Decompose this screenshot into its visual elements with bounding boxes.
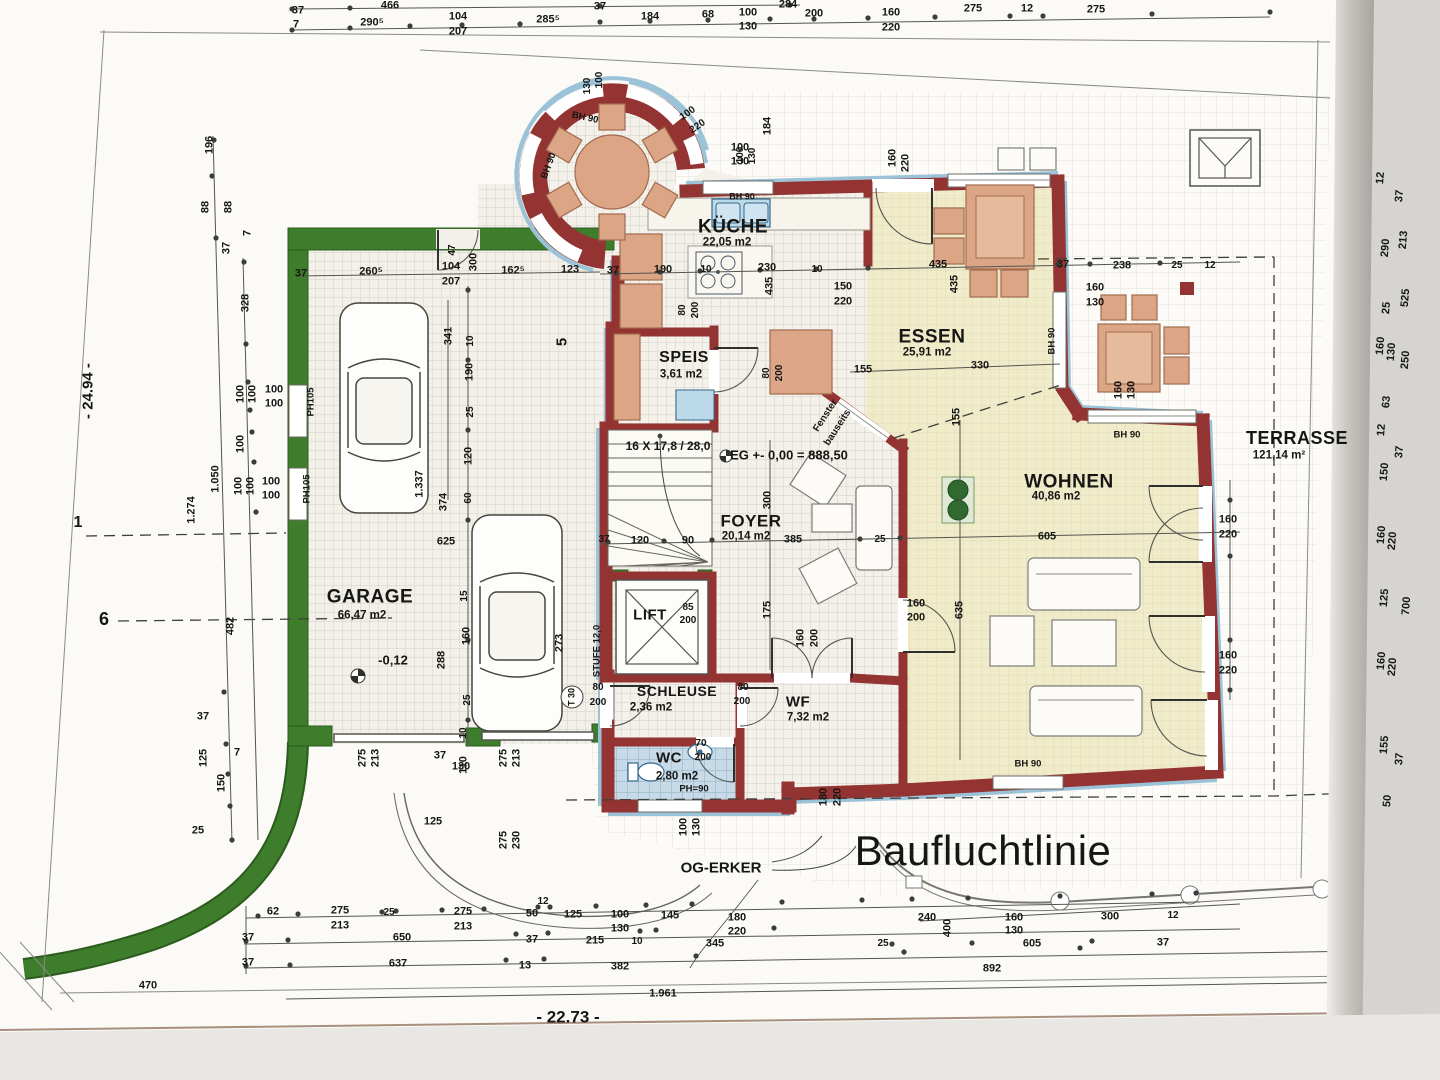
dim-label: 200 bbox=[590, 698, 607, 708]
dim-label: 10 bbox=[700, 265, 711, 275]
dim-label: 184 bbox=[641, 12, 659, 23]
dim-label: 37 bbox=[594, 2, 606, 13]
dim-label: 150 bbox=[217, 774, 228, 792]
dim-label: 275 bbox=[964, 4, 982, 15]
dim-label: 330 bbox=[971, 361, 989, 372]
dim-label: 150 bbox=[834, 282, 852, 293]
room-area: 66,47 m2 bbox=[338, 610, 387, 622]
annotation: 16 X 17,8 / 28,0 bbox=[626, 440, 711, 452]
dim-label: 200 bbox=[805, 9, 823, 20]
room-label: WF bbox=[786, 695, 810, 710]
dim-label: 145 bbox=[661, 911, 679, 922]
dim-label: 525 bbox=[1400, 288, 1413, 307]
room-area: 3,61 m2 bbox=[660, 369, 702, 381]
dim-label: 435 bbox=[765, 277, 776, 295]
dim-label: 650 bbox=[393, 933, 411, 944]
room-area: 20,14 m2 bbox=[722, 531, 771, 543]
dim-label: PH=90 bbox=[679, 784, 708, 794]
dim-label: 12 bbox=[537, 897, 548, 907]
annotation: Baufluchtlinie bbox=[855, 830, 1112, 872]
dim-label: 155 bbox=[1379, 735, 1392, 754]
room-label: WOHNEN bbox=[1024, 473, 1114, 492]
dim-label: 160 bbox=[1219, 651, 1237, 662]
dim-label: 37 bbox=[1394, 752, 1406, 765]
annotation: EG +- 0,00 = 888,50 bbox=[730, 449, 848, 462]
dim-label: 90 bbox=[682, 536, 694, 547]
dim-label: 160 bbox=[796, 629, 807, 647]
dim-label: 213 bbox=[512, 749, 523, 767]
dim-label: 220 bbox=[728, 927, 746, 938]
dim-label: BH 90 bbox=[571, 111, 599, 126]
dim-label: 482 bbox=[226, 617, 237, 635]
dim-label: 160 bbox=[1219, 515, 1237, 526]
dim-label: 400 bbox=[943, 919, 954, 937]
dim-label: 284 bbox=[779, 0, 797, 11]
dim-label: 374 bbox=[439, 493, 450, 511]
room-label: WC bbox=[656, 751, 682, 766]
dim-label: 160 bbox=[882, 8, 900, 19]
dim-label: 220 bbox=[1387, 531, 1400, 550]
dim-label: 25 bbox=[192, 826, 204, 837]
dim-label: 213 bbox=[454, 922, 472, 933]
dim-label: 155 bbox=[854, 365, 872, 376]
dim-label: 104 bbox=[449, 12, 467, 23]
dim-label: 273 bbox=[555, 634, 566, 652]
dim-label: 123 bbox=[561, 265, 579, 276]
dim-label: 290⁵ bbox=[360, 18, 384, 29]
dim-label: 10 bbox=[459, 727, 469, 738]
dim-label: 100 bbox=[736, 147, 746, 164]
room-area: 121,14 m² bbox=[1253, 450, 1305, 462]
dim-label: PH105 bbox=[302, 474, 312, 503]
room-label: GARAGE bbox=[327, 588, 413, 607]
dim-label: 150 bbox=[1379, 462, 1392, 481]
dim-label: 220 bbox=[882, 23, 900, 34]
dim-label: 220 bbox=[901, 154, 912, 172]
dim-label: 275 bbox=[454, 907, 472, 918]
dim-label: 80 bbox=[678, 304, 688, 315]
dim-label: 220 bbox=[833, 788, 844, 806]
dim-label: 162⁵ bbox=[501, 266, 525, 277]
room-label: ESSEN bbox=[899, 328, 966, 347]
dim-label: 63 bbox=[1381, 395, 1393, 408]
dim-label: 130 bbox=[611, 924, 629, 935]
dim-label: 47 bbox=[448, 244, 458, 255]
dim-label: 275 bbox=[1087, 5, 1105, 16]
dim-label: 80 bbox=[592, 683, 603, 693]
dim-label: 700 bbox=[1401, 596, 1414, 615]
dim-label: 200 bbox=[734, 697, 751, 707]
dim-label: 200 bbox=[680, 616, 697, 626]
dim-label: 37 bbox=[295, 269, 307, 280]
dim-label: 213 bbox=[331, 921, 349, 932]
dim-label: 190 bbox=[465, 363, 476, 381]
dim-label: 200 bbox=[810, 629, 821, 647]
dim-label: 435 bbox=[950, 275, 961, 293]
dim-label: 125 bbox=[564, 910, 582, 921]
dim-label: PH105 bbox=[306, 387, 316, 416]
dim-label: 37 bbox=[242, 958, 254, 969]
dim-label: 605 bbox=[1023, 939, 1041, 950]
dim-label: 130 bbox=[1005, 926, 1023, 937]
dim-label: 100 bbox=[678, 105, 697, 123]
dim-label: 25 bbox=[874, 535, 885, 545]
dim-label: 200 bbox=[691, 302, 701, 319]
dim-label: 1.961 bbox=[649, 989, 677, 1000]
dim-label: 88 bbox=[201, 201, 212, 213]
dim-label: 100 bbox=[595, 72, 605, 89]
dim-label: 196 bbox=[205, 136, 216, 154]
dim-label: 15 bbox=[460, 590, 470, 601]
dim-label: 130 bbox=[583, 78, 593, 95]
dim-label: 160 bbox=[907, 599, 925, 610]
dim-label: 240 bbox=[918, 913, 936, 924]
dim-label: 230 bbox=[758, 263, 776, 274]
dim-label: 220 bbox=[1219, 666, 1237, 677]
dim-label: 125 bbox=[424, 817, 442, 828]
dim-label: 160 bbox=[1114, 381, 1125, 399]
dim-label: 300 bbox=[1101, 912, 1119, 923]
dim-label: 160 bbox=[888, 149, 899, 167]
dim-label: 130 bbox=[1127, 381, 1138, 399]
dim-label: 104 bbox=[442, 262, 460, 273]
dim-label: 100 bbox=[236, 435, 247, 453]
dim-label: 50 bbox=[1382, 794, 1394, 807]
dim-label: 341 bbox=[444, 327, 455, 345]
dim-label: 130 bbox=[452, 762, 470, 773]
annotation: 1 bbox=[74, 515, 83, 531]
floorplan-page: 37466372847290⁵104207285⁵184681001302001… bbox=[0, 0, 1440, 1080]
room-area: 2,80 m2 bbox=[656, 771, 698, 783]
dim-label: 37 bbox=[1394, 189, 1406, 202]
dim-label: 80 bbox=[737, 683, 748, 693]
room-area: 7,32 m2 bbox=[787, 712, 829, 724]
dim-label: 288 bbox=[437, 651, 448, 669]
dim-label: 466 bbox=[381, 1, 399, 12]
dim-label: 100 bbox=[246, 477, 257, 495]
dim-label: 100 bbox=[248, 385, 259, 403]
dim-label: 37 bbox=[526, 935, 538, 946]
room-label: SPEIS bbox=[659, 350, 709, 366]
dim-label: 37 bbox=[242, 933, 254, 944]
dim-label: 635 bbox=[955, 601, 966, 619]
dim-label: 100 bbox=[262, 477, 280, 488]
dim-label: 275 bbox=[331, 906, 349, 917]
dim-label: 120 bbox=[631, 536, 649, 547]
dim-label: 220 bbox=[688, 118, 707, 136]
dim-label: 275 bbox=[499, 749, 510, 767]
dim-label: 1.050 bbox=[211, 465, 222, 493]
dim-label: BH 90 bbox=[1015, 759, 1042, 769]
dim-label: 100 bbox=[262, 491, 280, 502]
dim-label: 88 bbox=[224, 201, 235, 213]
dim-label: 200 bbox=[907, 613, 925, 624]
dim-label: 7 bbox=[243, 230, 254, 236]
dim-label: 12 bbox=[1021, 4, 1033, 15]
dim-label: 130 bbox=[692, 818, 703, 836]
dim-label: 130 bbox=[1386, 342, 1399, 361]
dim-label: 25 bbox=[877, 939, 888, 949]
dim-label: 37 bbox=[222, 242, 233, 254]
annotation: -0,12 bbox=[378, 654, 408, 667]
dim-label: 285⁵ bbox=[536, 15, 560, 26]
dim-label: 37 bbox=[607, 266, 619, 277]
room-area: 2,36 m2 bbox=[630, 702, 672, 714]
dim-label: 207 bbox=[442, 277, 460, 288]
room-label: LIFT bbox=[633, 608, 667, 623]
dim-label: 7 bbox=[234, 748, 240, 759]
dim-label: 100 bbox=[265, 385, 283, 396]
dim-label: 125 bbox=[1379, 588, 1392, 607]
dim-label: 605 bbox=[1038, 532, 1056, 543]
dim-label: 207 bbox=[449, 27, 467, 38]
dim-label: 180 bbox=[819, 788, 830, 806]
dim-label: 260⁵ bbox=[359, 267, 383, 278]
dim-label: 25 bbox=[463, 694, 473, 705]
dim-label: 345 bbox=[706, 939, 724, 950]
dim-label: 37 bbox=[434, 751, 446, 762]
dim-label: 25 bbox=[466, 406, 476, 417]
dim-label: 100 bbox=[611, 910, 629, 921]
dim-label: 100 bbox=[265, 399, 283, 410]
dim-label: 37 bbox=[1157, 938, 1169, 949]
dim-label: 300 bbox=[469, 253, 480, 271]
dim-label: 12 bbox=[1204, 261, 1215, 271]
dim-label: 37 bbox=[598, 535, 609, 545]
dim-label: 12 bbox=[1376, 423, 1388, 436]
room-area: 40,86 m2 bbox=[1032, 491, 1081, 503]
dim-label: 382 bbox=[611, 962, 629, 973]
dim-label: 435 bbox=[929, 260, 947, 271]
dim-label: 120 bbox=[464, 447, 475, 465]
dim-label: 155 bbox=[952, 408, 963, 426]
dim-label: 25 bbox=[383, 908, 394, 918]
dim-label: 328 bbox=[241, 294, 252, 312]
dim-label: 892 bbox=[983, 964, 1001, 975]
dim-label: 37 bbox=[197, 712, 209, 723]
dim-label: BH 90 bbox=[1114, 430, 1141, 440]
dim-label: 220 bbox=[834, 297, 852, 308]
room-label: TERRASSE bbox=[1246, 429, 1348, 447]
dim-label: 200 bbox=[695, 753, 712, 763]
annotation: T 30 bbox=[568, 688, 577, 706]
room-area: 25,91 m2 bbox=[903, 347, 952, 359]
room-label: SCHLEUSE bbox=[637, 684, 717, 698]
dim-label: 215 bbox=[586, 936, 604, 947]
dim-label: 37 bbox=[292, 6, 304, 17]
dim-label: 60 bbox=[464, 492, 474, 503]
dim-label: 100 bbox=[236, 385, 247, 403]
annotation: STUFE 12,0 bbox=[592, 625, 602, 677]
dim-label: 160 bbox=[1005, 913, 1023, 924]
dim-label: 625 bbox=[437, 537, 455, 548]
dim-label: 12 bbox=[1375, 171, 1387, 184]
room-area: 22,05 m2 bbox=[703, 237, 752, 249]
dim-label: 160 bbox=[1086, 283, 1104, 294]
dim-label: 7 bbox=[293, 20, 299, 31]
dim-label: 275 bbox=[499, 831, 510, 849]
dim-label: 10 bbox=[811, 265, 822, 275]
dim-label: 470 bbox=[139, 981, 157, 992]
dim-label: 37 bbox=[1394, 445, 1406, 458]
dim-label: 10 bbox=[466, 335, 476, 346]
dim-label: 200 bbox=[775, 365, 785, 382]
annotation: 5 bbox=[555, 338, 570, 346]
annotation: OG-ERKER bbox=[681, 861, 762, 876]
dim-label: 275 bbox=[358, 749, 369, 767]
dim-label: 100 bbox=[234, 477, 245, 495]
dim-label: 68 bbox=[702, 10, 714, 21]
dim-label: 180 bbox=[728, 913, 746, 924]
dim-label: 100 bbox=[739, 8, 757, 19]
dim-label: 85 bbox=[682, 603, 693, 613]
dim-label: 25 bbox=[1381, 301, 1393, 314]
dim-label: 213 bbox=[371, 749, 382, 767]
dim-label: 37 bbox=[1057, 260, 1069, 271]
dim-label: 220 bbox=[1219, 530, 1237, 541]
dim-label: 385 bbox=[784, 535, 802, 546]
dim-label: 220 bbox=[1387, 657, 1400, 676]
dim-label: 160 bbox=[462, 627, 473, 645]
dim-label: 130 bbox=[1086, 298, 1104, 309]
dim-label: 70 bbox=[695, 739, 706, 749]
dim-label: BH 90 bbox=[729, 193, 755, 202]
dim-label: 184 bbox=[763, 117, 774, 135]
dim-label: 100 bbox=[679, 818, 690, 836]
dim-label: 10 bbox=[631, 937, 642, 947]
annotation: 6 bbox=[99, 610, 109, 628]
dim-label: 290 bbox=[1380, 238, 1393, 257]
labels-layer: 37466372847290⁵104207285⁵184681001302001… bbox=[0, 0, 1440, 1080]
dim-label: 213 bbox=[1398, 230, 1411, 249]
dim-label: 125 bbox=[199, 749, 210, 767]
room-label: KÜCHE bbox=[698, 218, 768, 237]
dim-label: BH 90 bbox=[1047, 328, 1057, 355]
dim-label: 50 bbox=[526, 909, 538, 920]
dim-label: 238 bbox=[1113, 261, 1131, 272]
dim-label: 230 bbox=[512, 831, 523, 849]
dim-label: BH 90 bbox=[540, 152, 558, 181]
dim-label: 1.337 bbox=[415, 470, 426, 498]
dim-label: 62 bbox=[267, 907, 279, 918]
dim-label: 13 bbox=[519, 961, 531, 972]
dim-label: 300 bbox=[763, 491, 774, 509]
dim-label: 250 bbox=[1400, 350, 1413, 369]
dim-label: 80 bbox=[762, 367, 772, 378]
dim-label: 12 bbox=[1167, 911, 1178, 921]
room-label: FOYER bbox=[720, 513, 781, 530]
dim-label: 190 bbox=[654, 265, 672, 276]
annotation: - 22.73 - bbox=[536, 1009, 599, 1026]
dim-label: 175 bbox=[763, 601, 774, 619]
dim-label: 130 bbox=[748, 148, 758, 165]
dim-label: 637 bbox=[389, 959, 407, 970]
dim-label: 25 bbox=[1171, 261, 1182, 271]
dim-label: 130 bbox=[739, 22, 757, 33]
dim-label: 1.274 bbox=[187, 496, 198, 524]
annotation: - 24.94 - bbox=[81, 363, 96, 419]
